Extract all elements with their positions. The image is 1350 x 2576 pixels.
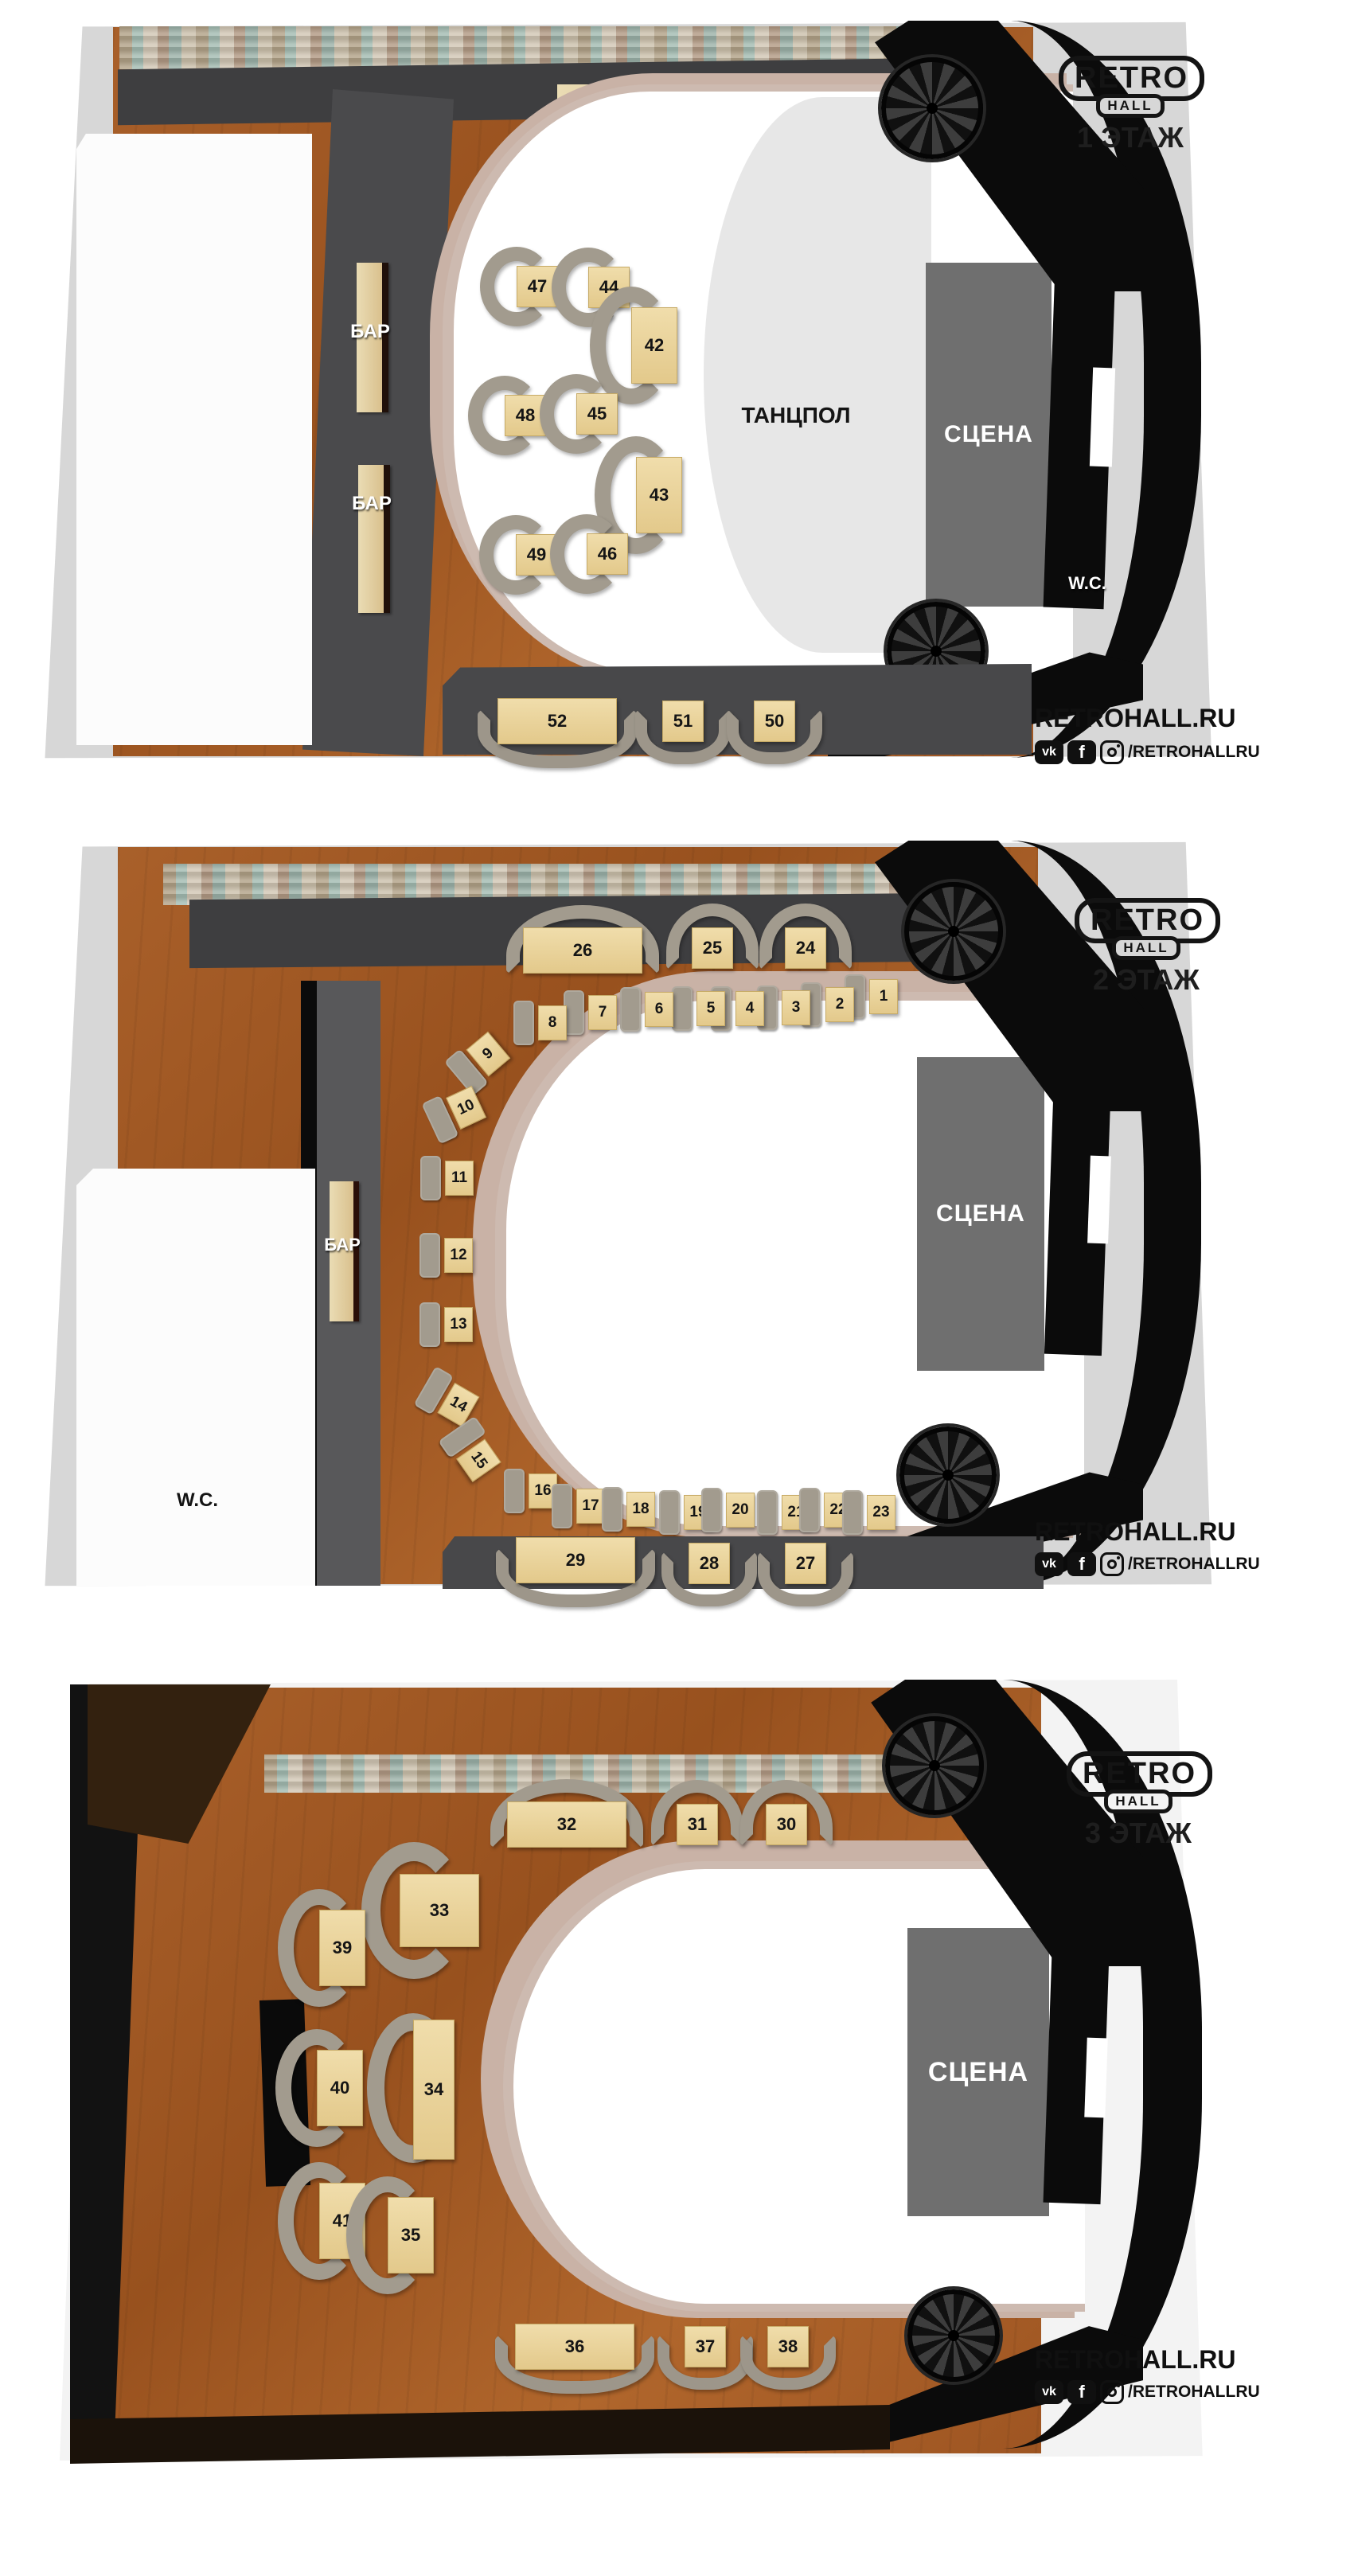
- table-number: 39: [319, 1910, 365, 1986]
- sofa: [602, 1487, 622, 1532]
- table-number: 46: [587, 533, 628, 575]
- table-5[interactable]: 5: [672, 986, 725, 1031]
- table-number: 6: [645, 992, 673, 1027]
- table-number: 17: [576, 1489, 605, 1524]
- table-number: 34: [413, 2020, 455, 2160]
- venue-floorplans: БАР БАР БАР ТАНЦПОЛ СЦЕНА W.C. RETRO HAL…: [0, 0, 1350, 2576]
- sofa: [504, 1469, 525, 1513]
- table-number: 13: [444, 1307, 473, 1342]
- table-30[interactable]: 30: [740, 1780, 833, 1847]
- table-number: 32: [507, 1801, 626, 1848]
- table-8[interactable]: 8: [513, 1001, 567, 1045]
- table-51[interactable]: 51: [635, 701, 731, 764]
- table-number: 4: [735, 991, 764, 1026]
- table-number: 23: [867, 1495, 895, 1530]
- table-3[interactable]: 3: [757, 986, 810, 1030]
- sofa: [799, 1488, 820, 1532]
- sofa: [842, 1490, 863, 1535]
- table-number: 12: [444, 1238, 473, 1273]
- table-number: 36: [515, 2324, 634, 2370]
- table-number: 52: [497, 698, 617, 744]
- sofa: [659, 1490, 680, 1535]
- table-number: 35: [388, 2197, 434, 2274]
- table-46[interactable]: 46: [550, 508, 628, 594]
- table-26[interactable]: 26: [506, 905, 659, 975]
- table-number: 45: [576, 393, 618, 435]
- table-11[interactable]: 11: [420, 1156, 474, 1200]
- table-17[interactable]: 17: [552, 1484, 605, 1528]
- table-number: 40: [317, 2050, 363, 2126]
- table-49[interactable]: 49: [479, 509, 557, 595]
- table-6[interactable]: 6: [620, 987, 673, 1032]
- table-38[interactable]: 38: [740, 2326, 836, 2390]
- table-number: 18: [626, 1492, 655, 1527]
- sofa: [757, 1490, 778, 1535]
- table-29[interactable]: 29: [496, 1537, 655, 1607]
- table-50[interactable]: 50: [727, 701, 822, 764]
- table-number: 25: [692, 927, 733, 969]
- table-40[interactable]: 40: [275, 2029, 363, 2147]
- table-52[interactable]: 52: [478, 698, 637, 768]
- sofa: [420, 1156, 441, 1200]
- table-number: 20: [726, 1493, 755, 1528]
- table-number: 24: [785, 927, 826, 969]
- table-7[interactable]: 7: [564, 990, 617, 1035]
- table-39[interactable]: 39: [278, 1889, 365, 2007]
- table-number: 8: [538, 1005, 567, 1040]
- table-15[interactable]: 15: [438, 1415, 505, 1485]
- sofa: [620, 987, 641, 1032]
- table-number: 42: [631, 307, 677, 384]
- table-number: 51: [662, 701, 704, 742]
- table-number: 1: [869, 979, 898, 1014]
- table-27[interactable]: 27: [758, 1543, 853, 1606]
- table-36[interactable]: 36: [495, 2324, 654, 2394]
- table-47[interactable]: 47: [480, 240, 558, 326]
- table-number: 2: [825, 987, 854, 1022]
- table-number: 27: [785, 1543, 826, 1584]
- table-33[interactable]: 33: [361, 1842, 479, 1979]
- sofa: [552, 1484, 572, 1528]
- table-number: 31: [677, 1804, 718, 1845]
- table-number: 26: [523, 927, 642, 974]
- table-31[interactable]: 31: [651, 1780, 743, 1847]
- table-number: 30: [766, 1804, 807, 1845]
- tables-layer: 4744424845434946525150262524123456789101…: [0, 0, 1350, 2576]
- table-18[interactable]: 18: [602, 1487, 655, 1532]
- table-35[interactable]: 35: [346, 2176, 434, 2294]
- table-28[interactable]: 28: [661, 1543, 757, 1606]
- table-37[interactable]: 37: [657, 2326, 753, 2390]
- table-16[interactable]: 16: [504, 1469, 557, 1513]
- sofa: [513, 1001, 534, 1045]
- table-number: 33: [400, 1874, 479, 1947]
- table-number: 43: [636, 457, 682, 533]
- table-25[interactable]: 25: [666, 904, 759, 970]
- table-number: 11: [445, 1161, 474, 1196]
- table-24[interactable]: 24: [759, 904, 852, 970]
- sofa: [701, 1488, 722, 1532]
- table-34[interactable]: 34: [367, 2013, 459, 2163]
- table-12[interactable]: 12: [419, 1233, 473, 1278]
- table-number: 28: [689, 1543, 730, 1584]
- table-number: 37: [685, 2326, 726, 2367]
- sofa: [419, 1233, 440, 1278]
- table-13[interactable]: 13: [419, 1302, 473, 1347]
- table-20[interactable]: 20: [701, 1488, 755, 1532]
- table-number: 50: [754, 701, 795, 742]
- sofa: [419, 1302, 440, 1347]
- table-48[interactable]: 48: [468, 369, 546, 455]
- table-number: 3: [782, 990, 810, 1025]
- table-number: 38: [767, 2326, 809, 2367]
- table-number: 29: [516, 1537, 635, 1583]
- sofa: [672, 986, 693, 1031]
- table-number: 7: [588, 995, 617, 1030]
- table-32[interactable]: 32: [490, 1779, 643, 1849]
- table-number: 5: [696, 991, 725, 1026]
- table-9[interactable]: 9: [444, 1028, 513, 1096]
- table-23[interactable]: 23: [842, 1490, 895, 1535]
